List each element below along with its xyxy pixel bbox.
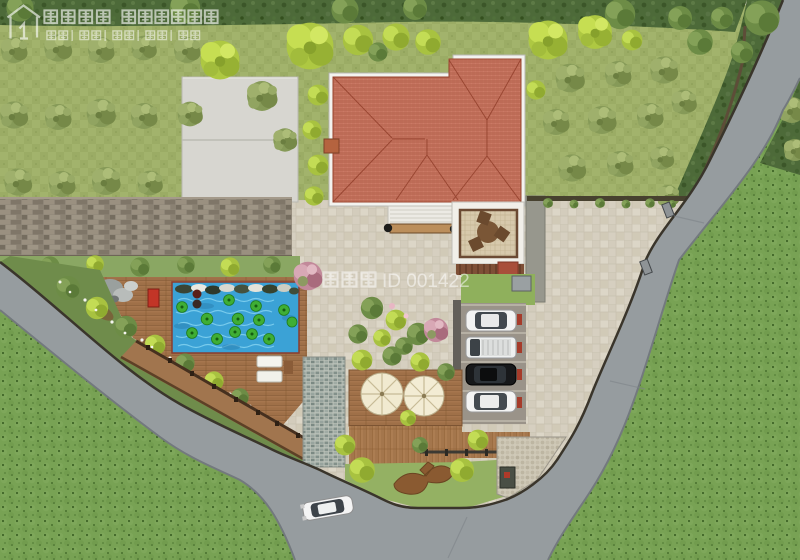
svg-text:ID 001422: ID 001422: [382, 271, 470, 292]
